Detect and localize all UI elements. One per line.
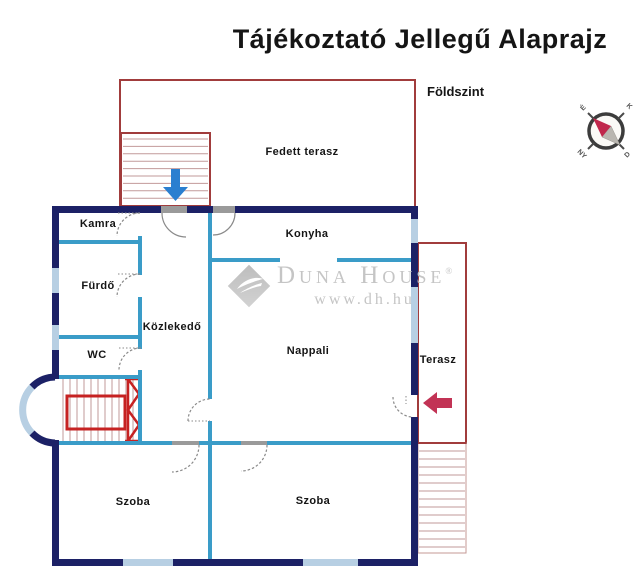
room-label-bedroom-right: Szoba bbox=[273, 495, 353, 507]
room-label-bathroom: Fürdő bbox=[58, 280, 138, 292]
compass-label-north: É bbox=[578, 103, 588, 113]
watermark-brand: Duna House® bbox=[277, 263, 452, 288]
page-title: Tájékoztató Jellegű Alaprajz bbox=[185, 24, 640, 55]
terrace-door bbox=[393, 396, 413, 417]
compass-label-west: NY bbox=[576, 148, 588, 160]
watermark-url: www.dh.hu bbox=[314, 291, 415, 309]
interior-walls bbox=[55, 206, 411, 565]
terrace-stairs bbox=[418, 443, 466, 553]
floorplan-page: É K NY D Duna House® www.dh.hu Tájékozta… bbox=[0, 0, 640, 583]
room-label-livingroom: Nappali bbox=[258, 345, 358, 357]
floor-label: Földszint bbox=[427, 84, 484, 99]
room-label-kitchen: Konyha bbox=[257, 228, 357, 240]
bedroom-left-door bbox=[172, 441, 199, 472]
bedroom-right-door bbox=[241, 441, 267, 471]
interior-staircase bbox=[63, 379, 140, 441]
room-label-wc: WC bbox=[57, 349, 137, 361]
doors bbox=[117, 206, 413, 472]
compass-label-south: D bbox=[623, 151, 632, 160]
room-label-hallway: Közlekedő bbox=[130, 321, 214, 333]
entrance-stairs bbox=[121, 133, 210, 206]
room-label-terrace: Terasz bbox=[408, 354, 468, 366]
watermark-logo-icon bbox=[226, 263, 272, 309]
room-label-bedroom-left: Szoba bbox=[93, 496, 173, 508]
watermark: Duna House® www.dh.hu bbox=[226, 263, 452, 309]
kitchen-door bbox=[213, 206, 235, 235]
bay-window bbox=[23, 377, 55, 443]
registered-mark: ® bbox=[445, 266, 452, 276]
compass-icon: É K NY D bbox=[576, 102, 634, 160]
compass-label-east: K bbox=[625, 102, 634, 111]
entrance-door bbox=[161, 206, 187, 237]
room-label-pantry: Kamra bbox=[58, 218, 138, 230]
hall-livingroom-door bbox=[188, 399, 210, 421]
room-label-covered-terrace: Fedett terasz bbox=[242, 146, 362, 158]
